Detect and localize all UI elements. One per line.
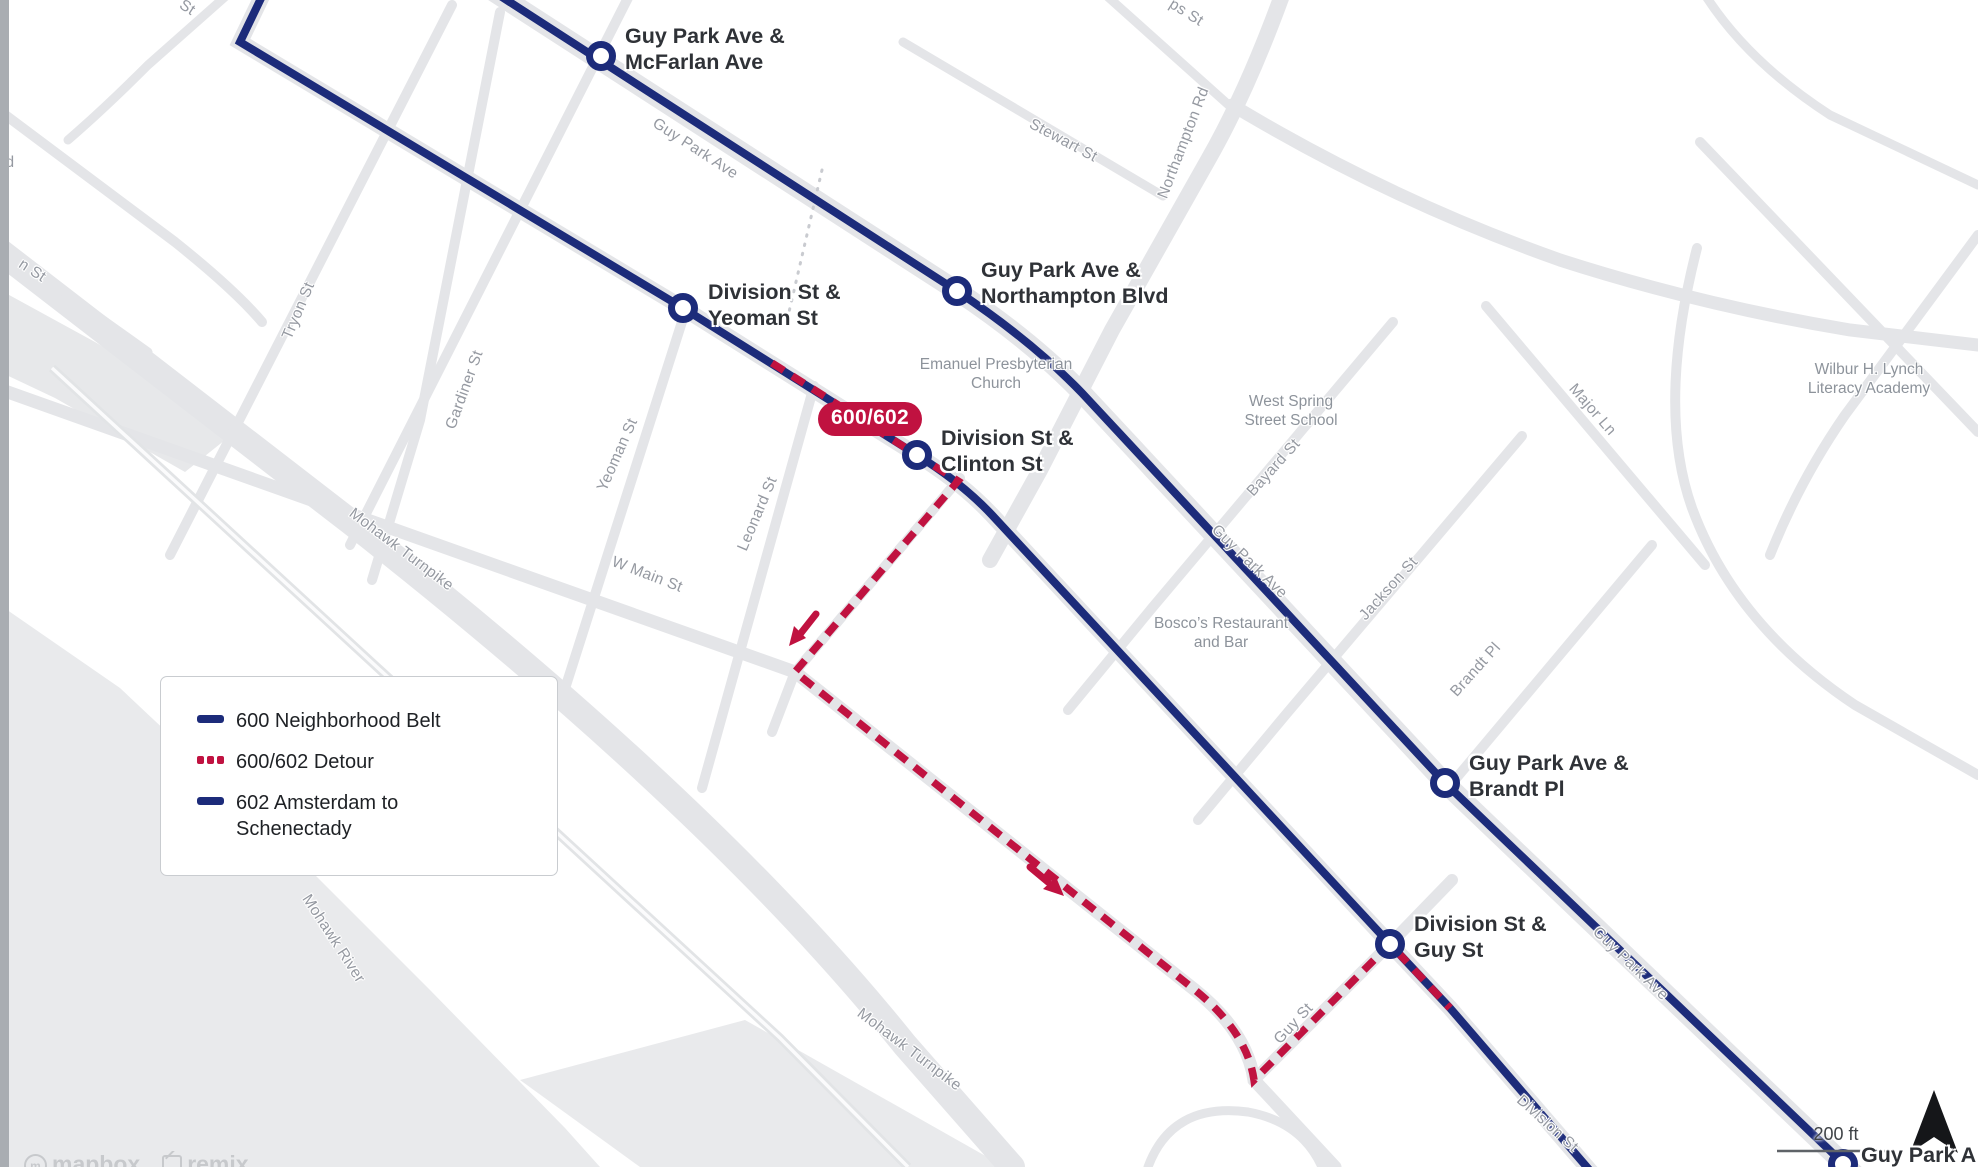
left-edge-strip	[0, 0, 9, 1167]
road-top-right-1	[1702, 0, 1978, 185]
stop-marker-yeoman	[672, 297, 695, 320]
road-junction-area	[0, 290, 240, 472]
stop-marker-clinton	[906, 444, 929, 467]
road-top-left-stub	[68, 0, 235, 140]
mapbox-logo-icon: m	[24, 1154, 47, 1167]
mapbox-wordmark: mapbox	[52, 1151, 140, 1167]
legend-swatch-detour-dashes	[197, 756, 224, 764]
north-arrow-icon	[1910, 1090, 1958, 1153]
detour-arrow-southwest	[789, 614, 816, 646]
remix-attribution-link[interactable]: remix	[162, 1151, 248, 1167]
legend-swatch-602-line	[197, 797, 224, 805]
stop-marker-brandt	[1434, 772, 1457, 795]
road-stewart-st	[903, 42, 1163, 196]
legend-item-602: 602 Amsterdam to Schenectady	[197, 790, 539, 842]
mapbox-attribution-link[interactable]: m mapbox	[24, 1151, 140, 1167]
road-brandt-pl	[1448, 545, 1652, 788]
legend-item-label: 600 Neighborhood Belt	[236, 708, 446, 734]
legend-item-detour: 600/602 Detour	[197, 749, 539, 775]
road-ps-st	[1098, 0, 1232, 108]
legend-item-label: 602 Amsterdam to Schenectady	[236, 790, 446, 842]
road-clinton-st	[772, 478, 960, 732]
map-layers	[0, 0, 1978, 1167]
legend-panel: 600 Neighborhood Belt 600/602 Detour 602…	[160, 676, 558, 876]
legend-item-label: 600/602 Detour	[236, 749, 446, 775]
stop-marker-mcfarlan	[590, 45, 613, 68]
scale-bar-label: 200 ft	[1813, 1124, 1858, 1145]
road-leonard-st	[702, 386, 814, 788]
road-northampton-rd	[990, 0, 1284, 560]
remix-wordmark: remix	[187, 1151, 248, 1167]
detour-600-602-line	[772, 363, 1450, 1080]
legend-swatch-600-line	[197, 715, 224, 723]
map-attribution: m mapbox remix	[24, 1151, 249, 1167]
detour-badge: 600/602	[818, 402, 922, 436]
stop-marker-bottom	[1832, 1153, 1855, 1167]
stop-marker-northampton	[946, 280, 969, 303]
road-yeoman-st	[562, 303, 688, 698]
legend-item-600: 600 Neighborhood Belt	[197, 708, 539, 734]
remix-logo-icon	[162, 1155, 182, 1167]
map-canvas[interactable]: St ps St Stewart St Northampton Rd Guy P…	[0, 0, 1978, 1167]
stop-marker-guy	[1379, 933, 1402, 956]
